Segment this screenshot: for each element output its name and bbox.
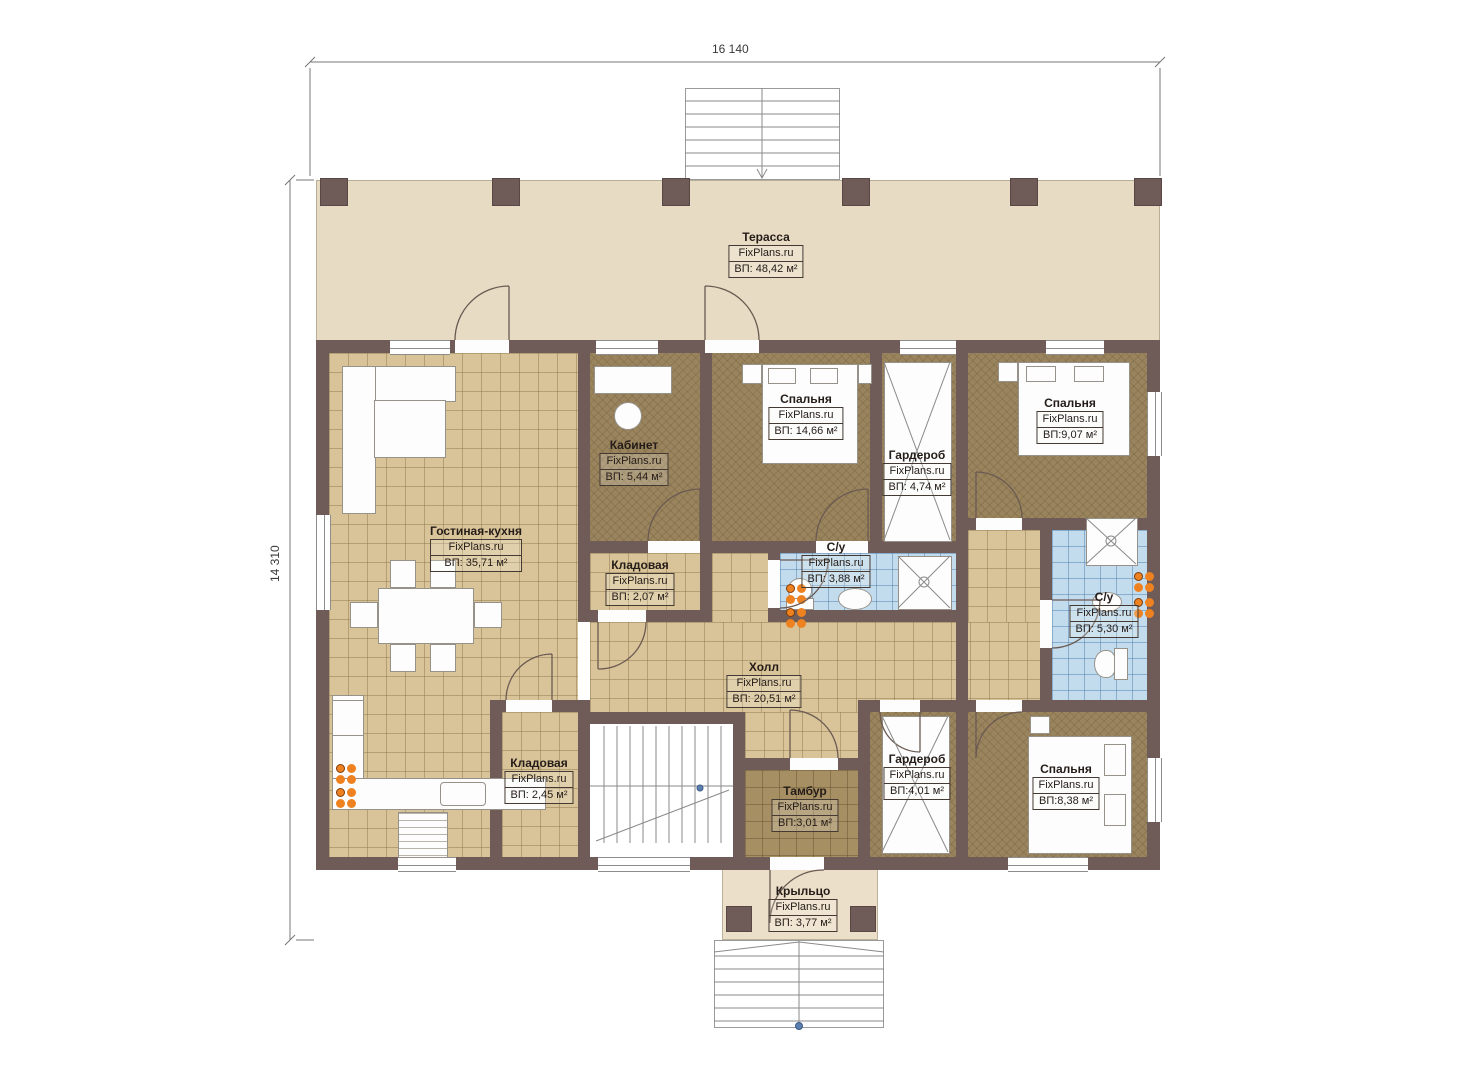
wall-int (700, 353, 712, 610)
wall-int (956, 353, 968, 530)
stair-floor (590, 724, 733, 857)
window (1046, 340, 1104, 355)
chair (430, 644, 456, 672)
window (398, 857, 456, 872)
room-label-porch: Крыльцо FixPlans.ru ВП: 3,77 м² (768, 884, 837, 932)
dimension-width-label: 16 140 (712, 42, 749, 56)
pillow (1026, 366, 1056, 382)
pillow (1104, 794, 1126, 826)
hall-right-floor (968, 530, 1040, 622)
area-box: ВП: 3,77 м² (768, 916, 837, 932)
nightstand (742, 364, 762, 384)
area-box: ВП: 2,45 м² (504, 788, 573, 804)
brand-box: FixPlans.ru (605, 573, 674, 590)
radiator (1134, 572, 1154, 592)
radiator (786, 608, 806, 628)
pillow (768, 368, 796, 384)
window (900, 340, 956, 355)
kitchen-sink (440, 782, 486, 806)
wall-int (858, 712, 870, 857)
door-opening (976, 518, 1022, 530)
sofa (342, 366, 376, 514)
room-name: Кабинет (599, 438, 668, 452)
door-opening (770, 857, 824, 870)
brand-box: FixPlans.ru (882, 463, 951, 480)
area-box: ВП: 3,88 м² (801, 572, 870, 588)
window (1008, 857, 1088, 872)
room-name: Гардероб (882, 448, 951, 462)
window (316, 515, 331, 610)
nightstand (998, 362, 1018, 382)
room-label-terrace: Терасса FixPlans.ru ВП: 48,42 м² (728, 230, 803, 278)
desk-chair (614, 402, 642, 430)
door-opening (1040, 600, 1052, 648)
door-opening (705, 340, 759, 353)
room-label-vestibule: Тамбур FixPlans.ru ВП:3,01 м² (771, 784, 838, 832)
room-label-bathroom2: С/у FixPlans.ru ВП: 5,30 м² (1069, 590, 1138, 638)
brand-box: FixPlans.ru (771, 799, 838, 816)
hall-stub-floor (712, 553, 768, 622)
sofa-chaise (374, 400, 446, 458)
brand-box: FixPlans.ru (599, 453, 668, 470)
room-name: Кладовая (504, 756, 573, 770)
pillow (1104, 744, 1126, 776)
washbasin (838, 588, 872, 610)
pillow (810, 368, 838, 384)
terrace-pillar (1134, 178, 1162, 206)
shower-tray (898, 556, 952, 610)
floor-plan: 16 140 14 310 (0, 0, 1474, 1080)
room-name: Спальня (1036, 396, 1103, 410)
area-box: ВП: 5,44 м² (599, 470, 668, 486)
brand-box: FixPlans.ru (726, 675, 801, 692)
brand-box: FixPlans.ru (728, 245, 803, 262)
room-label-wardrobe2: Гардероб FixPlans.ru ВП:4,01 м² (883, 752, 950, 800)
dimension-height-label: 14 310 (268, 545, 282, 582)
area-box: ВП: 48,42 м² (728, 262, 803, 278)
window (598, 857, 690, 872)
nightstand (858, 364, 872, 384)
door-opening (648, 541, 700, 553)
room-name: Терасса (728, 230, 803, 244)
room-label-wardrobe1: Гардероб FixPlans.ru ВП: 4,74 м² (882, 448, 951, 496)
room-name: С/у (1069, 590, 1138, 604)
area-box: ВП: 35,71 м² (430, 556, 522, 572)
chair (474, 602, 502, 628)
area-box: ВП: 20,51 м² (726, 692, 801, 708)
toilet-tank (1114, 648, 1128, 680)
room-name: Холл (726, 660, 801, 674)
area-box: ВП: 2,07 м² (605, 590, 674, 606)
terrace-steps (685, 88, 840, 180)
room-label-hall: Холл FixPlans.ru ВП: 20,51 м² (726, 660, 801, 708)
shower-tray (1086, 518, 1138, 566)
room-name: Спальня (1032, 762, 1099, 776)
window (390, 340, 450, 355)
hall-floor (590, 622, 1040, 712)
toilet (1094, 650, 1116, 678)
chair (390, 560, 416, 588)
dining-table (378, 588, 474, 644)
area-box: ВП:4,01 м² (883, 784, 950, 800)
room-name: Крыльцо (768, 884, 837, 898)
wall-int (956, 530, 968, 700)
pillow (1074, 366, 1104, 382)
brand-box: FixPlans.ru (504, 771, 573, 788)
porch-pillar (850, 906, 876, 932)
hall-lower-floor (745, 712, 858, 758)
door-opening (790, 758, 838, 770)
porch-steps (714, 940, 884, 1028)
door-opening (768, 560, 780, 608)
wall-int (578, 712, 745, 724)
door-opening (455, 340, 509, 353)
porch-pillar (726, 906, 752, 932)
wall-int (578, 712, 590, 857)
room-label-living-kitchen: Гостиная-кухня FixPlans.ru ВП: 35,71 м² (430, 524, 522, 572)
room-label-bedroom1: Спальня FixPlans.ru ВП: 14,66 м² (768, 392, 843, 440)
brand-box: FixPlans.ru (1036, 411, 1103, 428)
terrace-pillar (662, 178, 690, 206)
brand-box: FixPlans.ru (768, 899, 837, 916)
brand-box: FixPlans.ru (1069, 605, 1138, 622)
terrace-pillar (492, 178, 520, 206)
room-name: Спальня (768, 392, 843, 406)
stove-burners (336, 788, 356, 808)
room-name: Тамбур (771, 784, 838, 798)
area-box: ВП: 14,66 м² (768, 424, 843, 440)
room-label-bedroom3: Спальня FixPlans.ru ВП:8,38 м² (1032, 762, 1099, 810)
door-opening (506, 700, 552, 712)
nightstand (1030, 716, 1050, 734)
room-label-pantry1: Кладовая FixPlans.ru ВП: 2,07 м² (605, 558, 674, 606)
room-name: Гардероб (883, 752, 950, 766)
brand-box: FixPlans.ru (768, 407, 843, 424)
window (1147, 392, 1162, 456)
wall-int (578, 353, 590, 622)
brand-box: FixPlans.ru (1032, 777, 1099, 794)
window (596, 340, 658, 355)
terrace-pillar (842, 178, 870, 206)
door-opening (976, 700, 1022, 712)
area-box: ВП: 5,30 м² (1069, 622, 1138, 638)
room-label-bathroom1: С/у FixPlans.ru ВП: 3,88 м² (801, 540, 870, 588)
room-name: Кладовая (605, 558, 674, 572)
stove-burners (336, 764, 356, 784)
door-opening (880, 700, 920, 712)
brand-box: FixPlans.ru (801, 555, 870, 572)
chair (390, 644, 416, 672)
area-box: ВП:3,01 м² (771, 816, 838, 832)
wall-int (956, 712, 968, 857)
brand-box: FixPlans.ru (883, 767, 950, 784)
brand-box: FixPlans.ru (430, 539, 522, 556)
room-label-study: Кабинет FixPlans.ru ВП: 5,44 м² (599, 438, 668, 486)
desk (594, 366, 672, 394)
terrace-pillar (1010, 178, 1038, 206)
room-name: Гостиная-кухня (430, 524, 522, 538)
window (1147, 758, 1162, 822)
dishwasher (398, 812, 448, 858)
door-opening (598, 610, 646, 622)
area-box: ВП:8,38 м² (1032, 794, 1099, 810)
wall-int (733, 712, 745, 857)
terrace-pillar (320, 178, 348, 206)
area-box: ВП:9,07 м² (1036, 428, 1103, 444)
chair (350, 602, 378, 628)
room-name: С/у (801, 540, 870, 554)
room-label-pantry2: Кладовая FixPlans.ru ВП: 2,45 м² (504, 756, 573, 804)
room-label-bedroom2: Спальня FixPlans.ru ВП:9,07 м² (1036, 396, 1103, 444)
fridge (332, 700, 364, 736)
area-box: ВП: 4,74 м² (882, 480, 951, 496)
